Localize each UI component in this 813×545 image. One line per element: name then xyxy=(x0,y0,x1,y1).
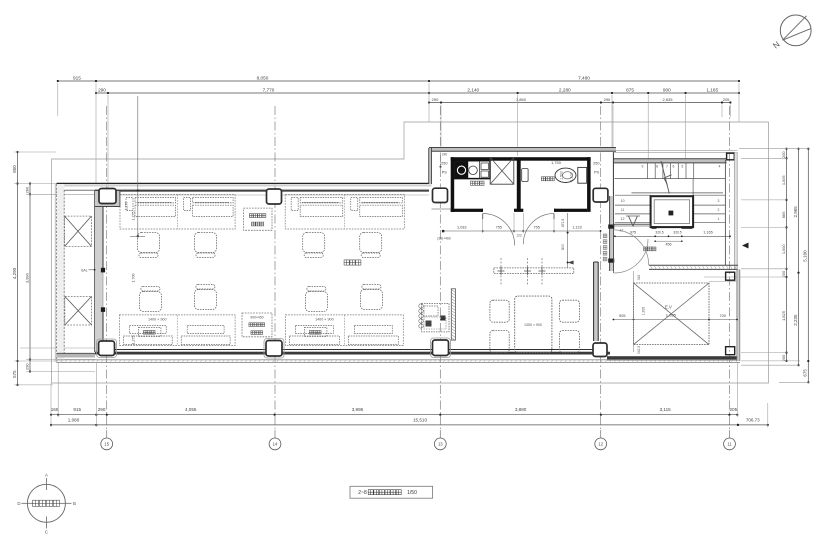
svg-text:2: 2 xyxy=(717,208,719,212)
svg-text:11: 11 xyxy=(621,208,625,212)
svg-text:290: 290 xyxy=(24,363,29,370)
svg-text:250: 250 xyxy=(593,161,599,165)
svg-text:320.5: 320.5 xyxy=(655,231,663,235)
svg-text:BAL: BAL xyxy=(81,268,88,272)
svg-text:10: 10 xyxy=(621,199,625,203)
svg-text:5,100: 5,100 xyxy=(803,250,808,262)
svg-text:342.5: 342.5 xyxy=(637,346,641,354)
svg-text:PS: PS xyxy=(594,170,600,174)
svg-text:8,050: 8,050 xyxy=(257,75,269,80)
svg-text:205: 205 xyxy=(730,407,738,412)
svg-text:2,140: 2,140 xyxy=(467,87,479,92)
svg-text:1,000: 1,000 xyxy=(781,244,786,255)
svg-text:240: 240 xyxy=(442,153,448,157)
svg-text:900: 900 xyxy=(663,87,671,92)
svg-text:1400 × 900: 1400 × 900 xyxy=(315,317,334,321)
svg-text:7,770: 7,770 xyxy=(263,87,275,92)
svg-text:15: 15 xyxy=(104,442,109,447)
svg-text:1350 × 900: 1350 × 900 xyxy=(524,323,542,327)
svg-text:800: 800 xyxy=(561,244,565,250)
svg-text:200: 200 xyxy=(781,270,786,277)
svg-text:1,275: 1,275 xyxy=(131,336,135,345)
svg-text:4,290: 4,290 xyxy=(12,267,17,279)
svg-text:290: 290 xyxy=(98,87,106,92)
svg-text:5: 5 xyxy=(681,164,683,168)
svg-text:3,990: 3,990 xyxy=(24,272,29,283)
svg-text:3,880: 3,880 xyxy=(515,407,527,412)
svg-text:456: 456 xyxy=(666,242,672,246)
svg-text:B: B xyxy=(73,501,76,506)
svg-text:2,965: 2,965 xyxy=(793,206,798,218)
svg-text:2~8: 2~8 xyxy=(358,490,367,496)
svg-text:706.73: 706.73 xyxy=(746,417,760,422)
svg-text:1,500: 1,500 xyxy=(560,171,564,180)
svg-text:1,165: 1,165 xyxy=(703,231,713,235)
svg-text:290: 290 xyxy=(98,407,106,412)
svg-text:A: A xyxy=(45,473,48,478)
svg-text:205: 205 xyxy=(723,97,730,102)
svg-text:915: 915 xyxy=(73,407,81,412)
svg-text:1,033: 1,033 xyxy=(457,225,467,229)
svg-text:3: 3 xyxy=(717,199,719,203)
svg-text:1,825: 1,825 xyxy=(781,311,786,321)
svg-text:7,480: 7,480 xyxy=(578,75,590,80)
svg-text:E.V: E.V xyxy=(665,305,672,310)
svg-text:290: 290 xyxy=(432,97,439,102)
svg-text:675: 675 xyxy=(803,369,808,377)
svg-text:260: 260 xyxy=(24,186,29,193)
svg-text:471.5: 471.5 xyxy=(561,219,565,228)
svg-text:290: 290 xyxy=(604,97,611,102)
svg-text:200: 200 xyxy=(781,151,786,158)
svg-text:250: 250 xyxy=(441,161,447,165)
svg-text:200: 200 xyxy=(781,354,786,361)
svg-text:850: 850 xyxy=(12,165,17,173)
svg-text:3,995: 3,995 xyxy=(352,407,364,412)
svg-text:1: 1 xyxy=(717,217,719,221)
svg-text:8: 8 xyxy=(656,164,658,168)
svg-text:1,123: 1,123 xyxy=(572,225,582,229)
svg-text:13: 13 xyxy=(438,442,443,447)
svg-text:12: 12 xyxy=(621,217,625,221)
svg-text:4,055: 4,055 xyxy=(185,407,197,412)
svg-text:12: 12 xyxy=(598,442,603,447)
svg-text:1,005: 1,005 xyxy=(781,175,786,185)
svg-text:915: 915 xyxy=(73,75,81,80)
svg-text:2,235: 2,235 xyxy=(793,314,798,326)
svg-text:1,080: 1,080 xyxy=(68,417,80,422)
svg-text:755: 755 xyxy=(534,225,540,229)
svg-text:1,165: 1,165 xyxy=(706,87,718,92)
svg-text:11: 11 xyxy=(727,442,732,447)
svg-text:345: 345 xyxy=(637,275,641,281)
svg-text:1,275: 1,275 xyxy=(125,202,129,211)
svg-text:665: 665 xyxy=(781,212,786,219)
svg-text:1/50: 1/50 xyxy=(407,490,417,496)
svg-text:755: 755 xyxy=(496,225,502,229)
svg-text:1400 × 900: 1400 × 900 xyxy=(148,317,167,321)
svg-text:6: 6 xyxy=(673,164,675,168)
svg-text:15,510: 15,510 xyxy=(413,417,427,422)
svg-text:900×450: 900×450 xyxy=(250,315,263,319)
svg-text:3,115: 3,115 xyxy=(660,407,672,412)
svg-text:(38)+460: (38)+460 xyxy=(437,236,451,240)
svg-text:700: 700 xyxy=(720,314,726,318)
svg-text:1,905: 1,905 xyxy=(642,307,646,315)
svg-text:2,280: 2,280 xyxy=(559,87,571,92)
svg-text:320.5: 320.5 xyxy=(673,231,681,235)
svg-text:7: 7 xyxy=(666,164,668,168)
svg-text:875: 875 xyxy=(626,87,634,92)
svg-text:122: 122 xyxy=(516,234,522,238)
svg-text:575: 575 xyxy=(12,370,17,378)
svg-text:1,700: 1,700 xyxy=(131,274,135,283)
svg-text:9: 9 xyxy=(641,164,643,168)
svg-text:2,635: 2,635 xyxy=(662,97,673,102)
svg-text:1,750: 1,750 xyxy=(551,160,562,165)
svg-text:1,275: 1,275 xyxy=(131,212,135,221)
svg-text:14: 14 xyxy=(273,442,278,447)
svg-text:PS: PS xyxy=(442,170,448,174)
svg-text:505: 505 xyxy=(619,314,625,318)
svg-text:1,100: 1,100 xyxy=(570,173,574,182)
svg-text:1,095: 1,095 xyxy=(666,313,677,318)
svg-text:165: 165 xyxy=(51,407,59,412)
svg-text:4: 4 xyxy=(719,164,721,168)
